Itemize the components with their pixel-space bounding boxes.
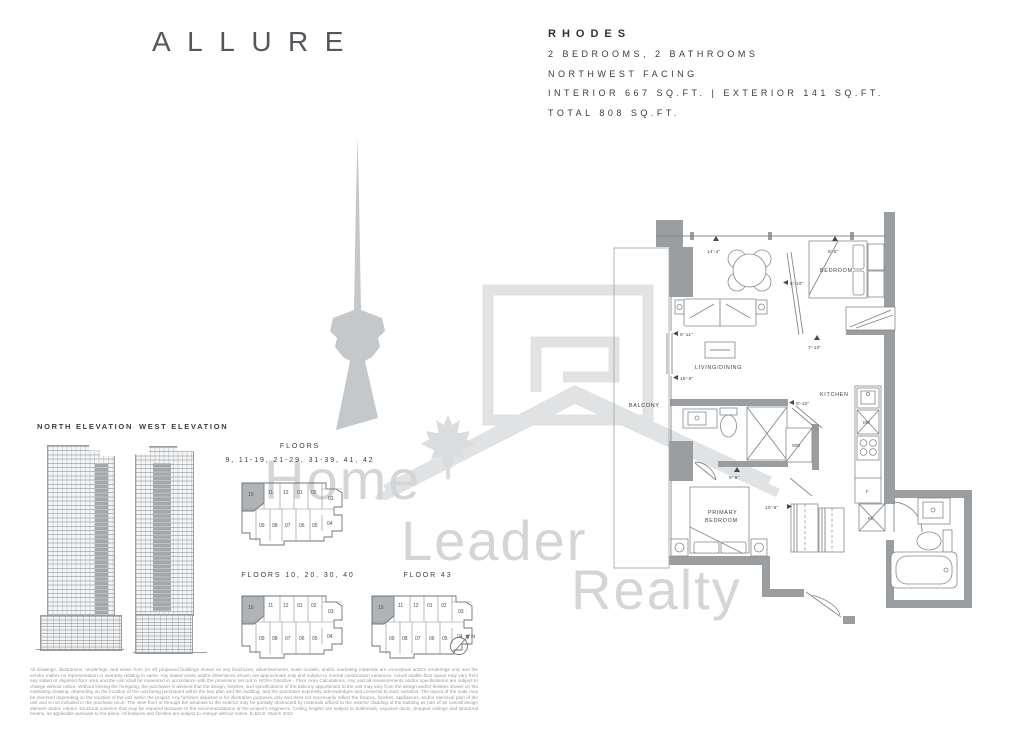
floorplan: BALCONY LIVING/DINING BEDROOM KITCHEN PR… [605, 200, 990, 630]
toilet-tank [943, 530, 952, 552]
compass-north-label: N [471, 634, 475, 640]
unit-cell: 04 [327, 521, 333, 527]
unit-cell: 12 [413, 603, 419, 609]
floorplan-fixtures [671, 241, 957, 588]
floorplan-sheet: Home Leader Realty ALLURE RHODES 2 BEDRO… [0, 0, 1030, 755]
keyplan3-title: FLOOR 43 [378, 572, 478, 579]
keyplan-floors-10-20-30-40: 10 11 12 01 02 03 09 08 07 06 05 04 [238, 590, 346, 670]
unit-cell: 09 [259, 636, 265, 642]
unit-spec-area: INTERIOR 667 SQ.FT. | EXTERIOR 141 SQ.FT… [548, 88, 884, 98]
room-label-bedroom: BEDROOM [820, 268, 853, 274]
dim-living-depth: 9'-11" [680, 332, 693, 338]
unit-cell: 03 [328, 496, 334, 502]
unit-cell: 07 [285, 636, 291, 642]
unit-cell: 01 [297, 490, 303, 496]
dim-living-length: 18'-5" [680, 376, 694, 382]
west-ground-line [133, 652, 207, 653]
unit-cell: 06 [299, 636, 305, 642]
unit-cell: 10 [248, 605, 254, 611]
west-elevation-podium [135, 614, 193, 654]
unit-cell: 07 [285, 523, 291, 529]
west-elevation-label: WEST ELEVATION [139, 422, 228, 431]
unit-cell: 10 [248, 492, 254, 498]
unit-cell: 09 [389, 636, 395, 642]
compass-icon: N [446, 628, 480, 662]
unit-cell: 09 [259, 523, 265, 529]
unit-cell: 06 [429, 636, 435, 642]
unit-cell: 12 [283, 603, 289, 609]
room-label-kitchen: KITCHEN [820, 392, 849, 398]
unit-cell: 08 [272, 523, 278, 529]
allure-logo: ALLURE [152, 26, 360, 58]
unit-cell: 11 [398, 603, 403, 609]
room-label-primary-2: BEDROOM [705, 518, 738, 524]
label-washer-dryer: W/D [792, 443, 800, 448]
north-tower-unit-strip [95, 463, 108, 616]
nightstand [868, 271, 884, 297]
unit-name: RHODES [548, 28, 884, 40]
toilet-tank [720, 408, 737, 415]
unit-cell: 08 [402, 636, 408, 642]
unit-spec-bed-bath: 2 BEDROOMS, 2 BATHROOMS [548, 49, 884, 59]
label-dishwasher: DW [863, 420, 870, 425]
unit-cell: 08 [272, 636, 278, 642]
unit-cell: 07 [415, 636, 421, 642]
room-label-living-dining: LIVING/DINING [695, 365, 742, 371]
disclaimer-text: All drawings, illustrations, renderings,… [30, 667, 478, 717]
unit-cell: 02 [311, 490, 317, 496]
pillow [694, 542, 719, 553]
watermark-inner-glyph [536, 342, 614, 392]
dim-living-width: 14'-4" [707, 249, 721, 255]
unit-cell: 02 [311, 603, 317, 609]
unit-info-block: RHODES 2 BEDROOMS, 2 BATHROOMS NORTHWEST… [548, 28, 884, 127]
dim-primary-width: 10'-8" [765, 505, 779, 511]
closet [819, 508, 844, 552]
dim-foyer-width: 7'-10" [808, 345, 822, 351]
pillow [721, 542, 746, 553]
north-ground-line [36, 649, 124, 650]
toilet [917, 532, 941, 550]
unit-cell: 02 [441, 603, 447, 609]
unit-cell: 06 [299, 523, 305, 529]
pillow [853, 271, 864, 295]
dim-bedroom-width: 8'-5" [828, 249, 839, 255]
north-elevation-label: NORTH ELEVATION [37, 422, 133, 431]
unit-cell: 12 [283, 490, 289, 496]
keyplan-floors-typical: 10 11 12 01 02 03 09 08 07 06 05 04 [238, 477, 346, 557]
label-fridge: F [866, 489, 869, 494]
unit-cell: 10 [378, 605, 384, 611]
keyplan2-title: FLOORS 10, 20, 30, 40 [218, 572, 378, 579]
unit-cell: 04 [327, 634, 333, 640]
unit-cell: 01 [427, 603, 433, 609]
cn-tower-silhouette [328, 135, 388, 435]
unit-cell: 11 [268, 603, 273, 609]
nightstand [868, 244, 884, 270]
pillow [853, 245, 864, 269]
watermark-word-leader: Leader [401, 513, 587, 569]
unit-cell: 03 [458, 609, 464, 615]
north-elevation-podium [40, 615, 122, 651]
unit-cell: 05 [312, 523, 318, 529]
dining-table [733, 254, 766, 287]
room-label-balcony: BALCONY [629, 403, 660, 409]
dim-ensuite-width: 8'-10" [796, 401, 810, 407]
closet [791, 504, 818, 552]
unit-cell: 11 [268, 490, 273, 496]
unit-cell: 03 [328, 609, 334, 615]
keyplan1-title-line1: FLOORS [225, 443, 375, 450]
dim-ensuite-length: 8'-6" [729, 475, 740, 481]
unit-spec-total: TOTAL 808 SQ.FT. [548, 108, 884, 118]
unit-cell: 01 [297, 603, 303, 609]
room-label-primary-1: PRIMARY [708, 510, 737, 516]
north-elevation-tower [47, 445, 115, 627]
label-fan-coil: FC [868, 516, 874, 521]
keyplan1-title-line2: 9, 11-19, 21-29, 31-39, 41, 42 [218, 457, 382, 464]
toilet [721, 415, 737, 437]
unit-cell: 05 [312, 636, 318, 642]
west-elevation-tower [135, 446, 194, 616]
west-tower-unit-strip [153, 463, 171, 611]
dim-bedroom-depth: 8'-10" [790, 281, 804, 287]
unit-spec-facing: NORTHWEST FACING [548, 69, 884, 79]
cooktop [857, 436, 879, 460]
